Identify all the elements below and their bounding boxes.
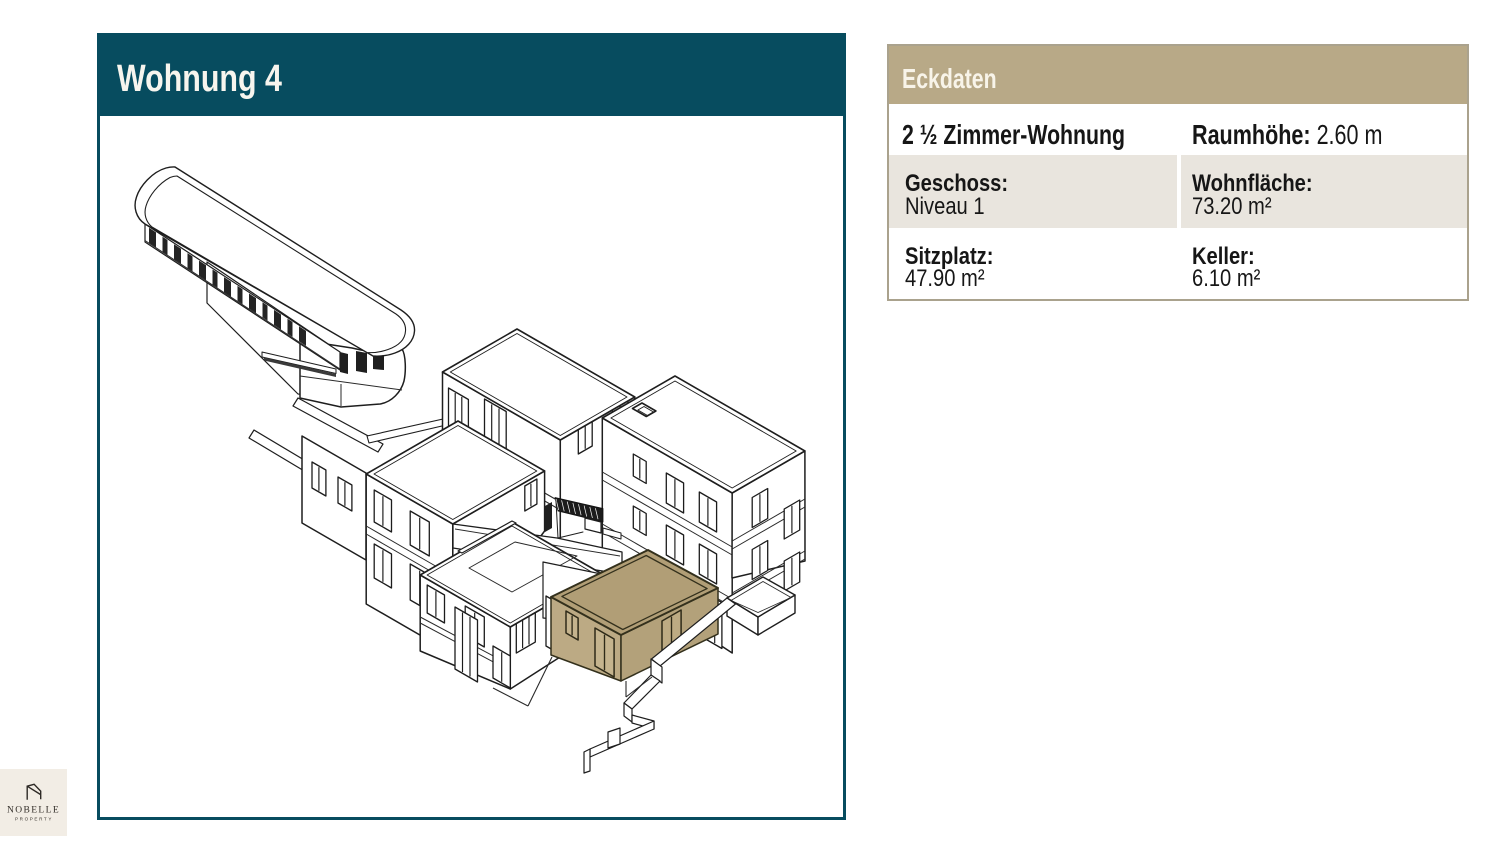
svg-text:NOBELLE: NOBELLE <box>7 806 60 816</box>
svg-text:PROPERTY: PROPERTY <box>15 817 53 822</box>
